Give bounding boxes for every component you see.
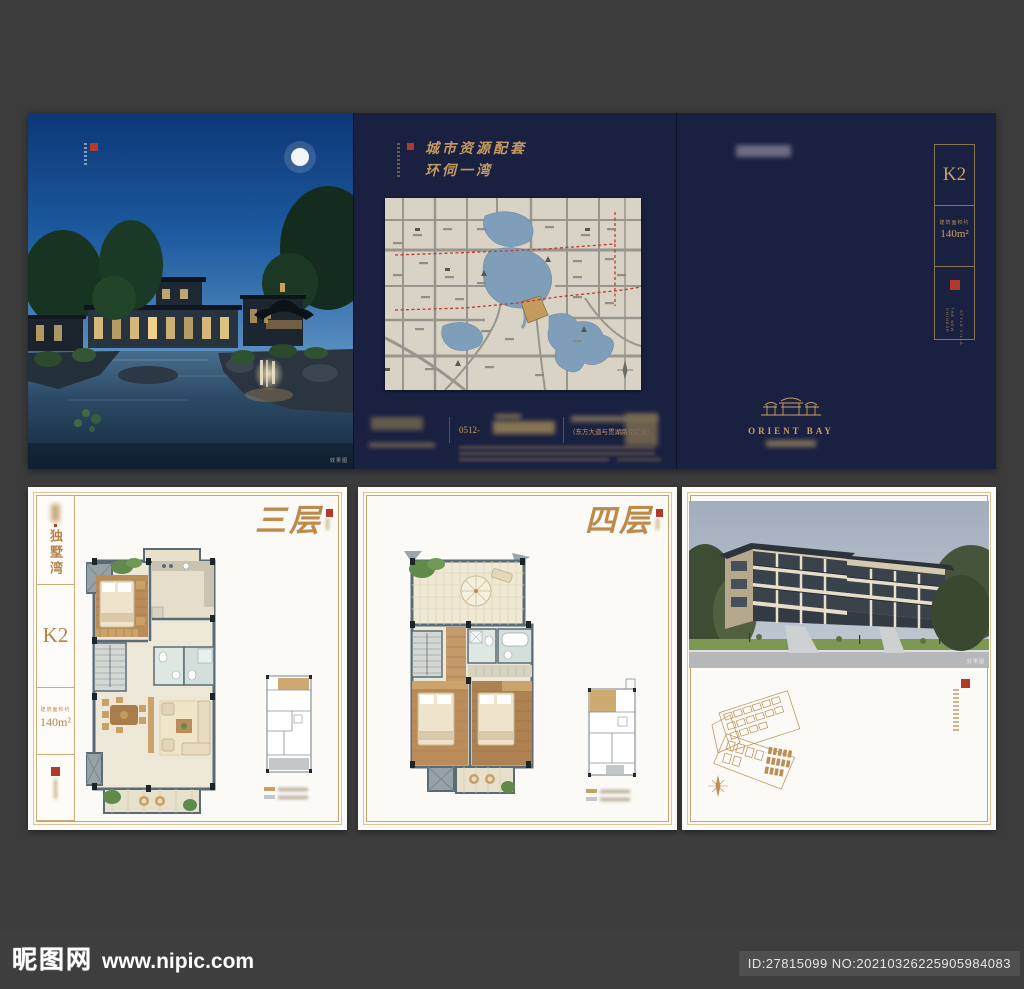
fold-line (353, 113, 354, 469)
floorplan-third-schematic (264, 673, 314, 775)
cover-panel: K2 建筑面积约 140m² THE NEW CHINESE STYLE VIL… (676, 113, 996, 469)
site-logo: 昵图网 www.nipic.com (12, 940, 254, 976)
watermark-bar: 昵图网 www.nipic.com ID:27815099 NO:2021032… (0, 930, 1024, 989)
map-title-line2: 环伺一湾 (425, 161, 527, 183)
fineprint-blurred (617, 458, 661, 461)
area-label: 建筑面积约 (37, 706, 74, 713)
brand-logo-blurred (736, 145, 791, 157)
fold-line (676, 113, 677, 469)
unit-info-box: K2 建筑面积约 140m² THE NEW CHINESE STYLE VIL… (934, 144, 975, 340)
stock-preview-page: 效果图 城市资源配套 环伺一湾 (0, 0, 1024, 989)
plan-legend (586, 789, 630, 805)
phone-number-blurred (493, 421, 555, 434)
red-dot-icon (54, 524, 57, 527)
disclaimer-line-blurred (459, 446, 655, 449)
building-render-photo: 效果图 (689, 501, 989, 668)
map-title: 城市资源配套 环伺一湾 (425, 139, 527, 183)
floor-title-text: 四层 (585, 499, 653, 543)
map-header: 城市资源配套 环伺一湾 (397, 139, 527, 189)
unit-label: K2 (37, 585, 74, 688)
title-seal (656, 509, 663, 530)
seal-subtext-blurred (656, 518, 659, 530)
floor-title-text: 三层 (255, 499, 323, 543)
title-seal (326, 509, 333, 530)
floorplan-page-third: 独墅湾 K2 建筑面积约 140m² 三层 (28, 487, 347, 830)
floor-title-third: 三层 (255, 499, 333, 543)
red-seal-icon (326, 509, 333, 517)
disclaimer-line-blurred (459, 458, 609, 461)
garden-photo-panel: 效果图 (28, 113, 353, 469)
area-value: 140m² (935, 228, 974, 240)
project-name: 独墅湾 (46, 529, 65, 577)
site-plan-drawing (704, 687, 822, 799)
brochure-front-spread: 效果图 城市资源配套 环伺一湾 (28, 113, 996, 469)
legend-row-gold (264, 787, 308, 791)
legend-row-gray (264, 795, 308, 799)
vip-label-blurred (495, 414, 521, 419)
red-seal-icon (950, 280, 960, 290)
render-caption: 效果图 (967, 658, 985, 665)
red-seal-icon (961, 679, 970, 688)
site-logo-cn: 昵图网 (12, 940, 93, 976)
floorplan-fourth-schematic (586, 675, 638, 779)
plan-legend (264, 787, 308, 803)
legend-row-gray (586, 797, 630, 801)
contact-block: 0512- （东方大道与贯湖路交汇处） (367, 413, 667, 465)
legend-gold-swatch (586, 789, 597, 793)
floorplan-fourth-drawing (404, 551, 544, 817)
villa-text-line1: THE NEW CHINESE (945, 294, 955, 346)
compass-icon (708, 775, 728, 797)
garden-dusk-photo (28, 113, 353, 469)
seal-column (953, 679, 970, 733)
area-value: 140m² (37, 715, 74, 730)
legend-gray-swatch (586, 797, 597, 801)
red-seal-icon (656, 509, 663, 517)
contact-subtext-blurred (369, 443, 435, 447)
red-seal-icon (51, 767, 60, 776)
seal-subtext-blurred (54, 779, 57, 799)
divider (563, 417, 564, 443)
site-url: www.nipic.com (102, 950, 254, 974)
red-seal-icon (407, 143, 414, 150)
floor-title-fourth: 四层 (585, 499, 663, 543)
brand-block: ORIENT BAY (726, 395, 856, 447)
seal-cell: THE NEW CHINESE STYLE VILLA (935, 280, 974, 364)
qr-code-blurred (625, 413, 658, 446)
phone-prefix: 0512- (459, 425, 480, 435)
map-title-line1: 城市资源配套 (425, 139, 527, 161)
legend-label-blurred (278, 796, 308, 799)
vertical-caption-bars (953, 689, 959, 733)
unit-area-cell: 建筑面积约 140m² (37, 688, 74, 755)
header-vertical-caption-bars (397, 143, 400, 177)
disclaimer-line-blurred (459, 452, 655, 455)
legend-gray-swatch (264, 795, 275, 799)
legend-label-blurred (278, 788, 308, 791)
brand-cn-blurred (766, 440, 816, 447)
legend-label-blurred (600, 798, 630, 801)
area-label: 建筑面积约 (935, 219, 974, 226)
render-page: 效果图 (682, 487, 996, 830)
legend-label-blurred (600, 790, 630, 793)
gate-line-drawing-icon (759, 395, 823, 419)
divider (449, 417, 450, 443)
brand-name: ORIENT BAY (726, 426, 856, 436)
seal-cell (37, 755, 74, 820)
developer-logo-blurred (371, 417, 423, 430)
floorplan-third-drawing (86, 547, 238, 819)
legend-gold-swatch (264, 787, 275, 791)
project-prefix-blurred (51, 504, 60, 522)
villa-text-line2: STYLE VILLA (959, 310, 964, 346)
legend-row-gold (586, 789, 630, 793)
red-seal-icon (90, 143, 98, 151)
image-id-badge: ID:27815099 NO:20210326225905984083 (739, 951, 1020, 976)
location-map-panel: 城市资源配套 环伺一湾 (353, 113, 676, 469)
photo-caption: 效果图 (330, 457, 348, 464)
unit-area-cell: 建筑面积约 140m² (935, 219, 974, 267)
photo-vertical-caption-bars (84, 143, 87, 167)
seal-subtext-blurred (326, 518, 329, 530)
project-name-cell: 独墅湾 (37, 496, 74, 585)
area-map (385, 198, 641, 390)
unit-side-strip: 独墅湾 K2 建筑面积约 140m² (36, 495, 75, 821)
building-render-drawing (689, 501, 989, 668)
floorplan-page-fourth: 四层 (358, 487, 677, 830)
unit-label: K2 (935, 145, 974, 206)
